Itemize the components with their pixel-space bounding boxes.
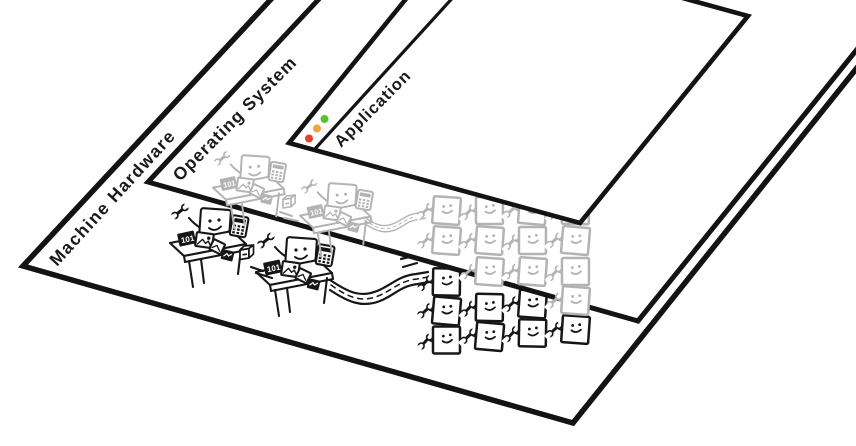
os-layers-illustration: 101 [0, 0, 856, 446]
illustration-canvas: 101 [0, 0, 856, 446]
traffic-light-minimize-icon [313, 125, 321, 133]
traffic-light-zoom-icon [321, 115, 329, 123]
traffic-light-close-icon [305, 135, 313, 143]
